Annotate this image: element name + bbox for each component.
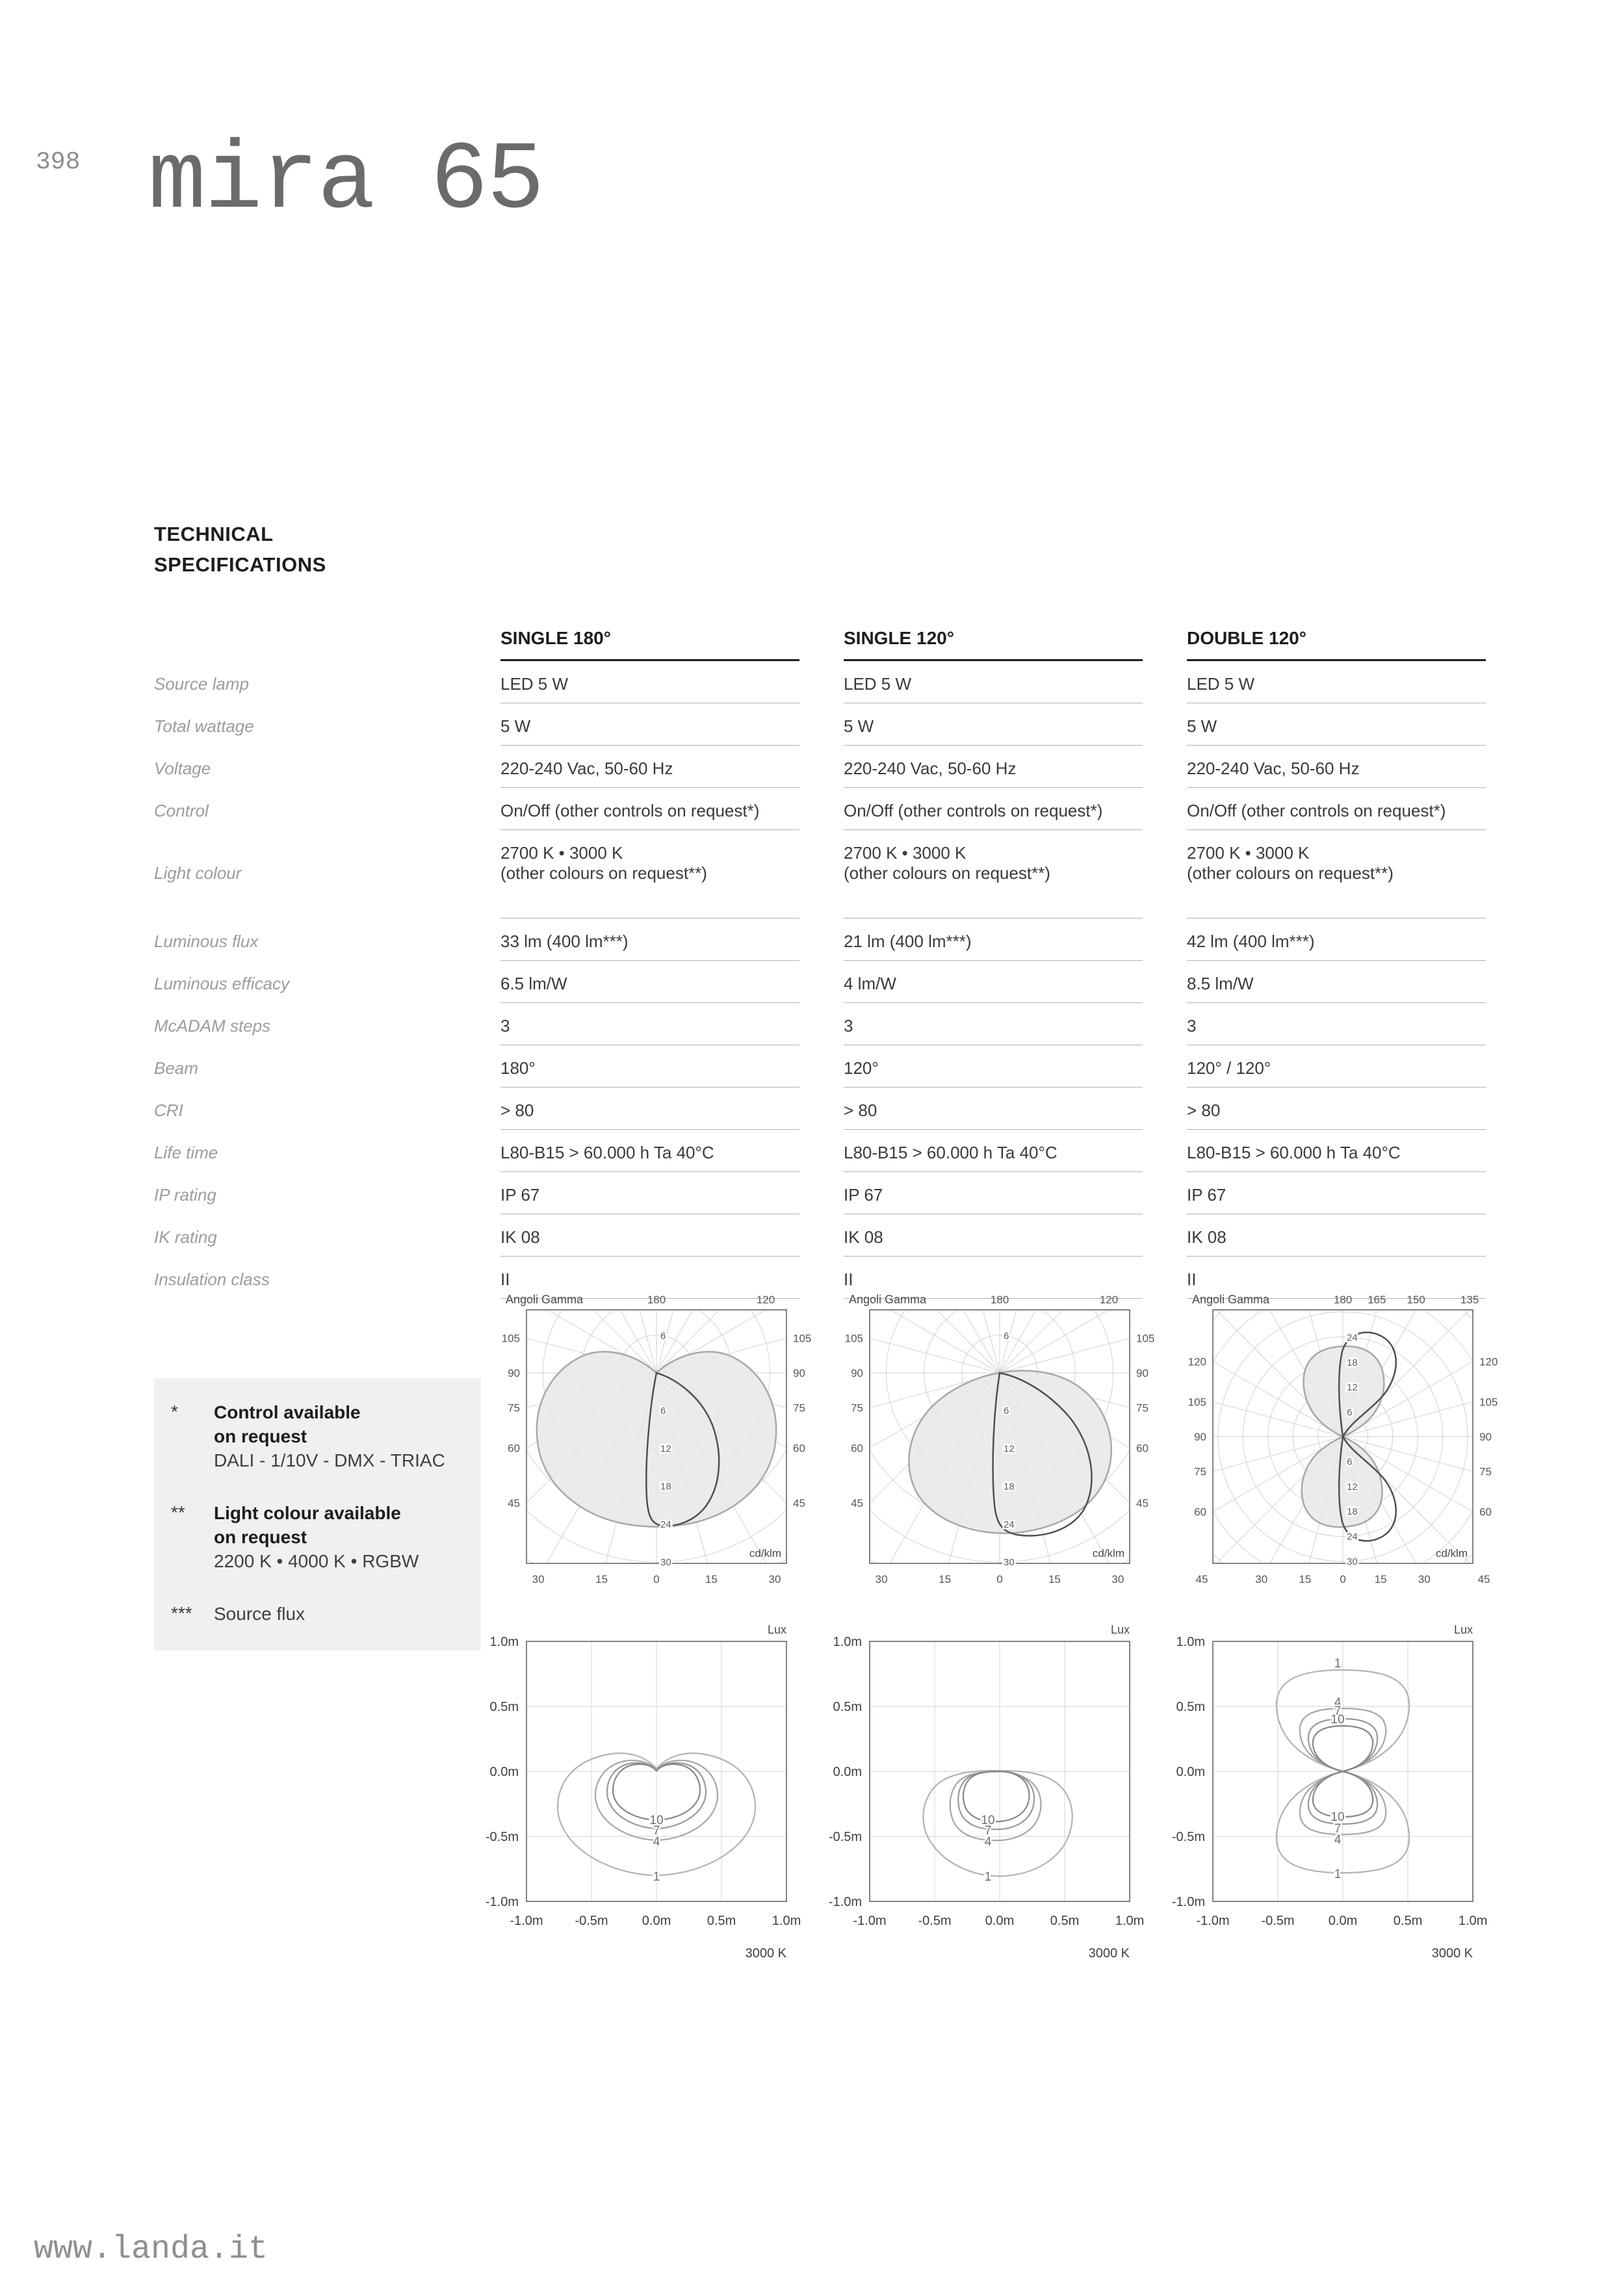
table-cell: 42 lm (400 lm***): [1187, 919, 1486, 961]
polar-diagram-double-120: Angoli Gamma1801651501351201201051059090…: [1187, 1290, 1486, 1609]
footer-url: www.landa.it: [34, 2231, 268, 2268]
row-label: Total wattage: [154, 703, 500, 746]
svg-text:0.0m: 0.0m: [833, 1765, 862, 1779]
table-cell: 8.5 lm/W: [1187, 961, 1486, 1003]
polar-diagram-container-single-120: Angoli Gamma1801201051059090757560604545…: [844, 1290, 1143, 1609]
table-cell: 5 W: [844, 703, 1143, 746]
lux-diagram-container-single-120: 10741Lux1.0m0.5m0.0m-0.5m-1.0m-1.0m-0.5m…: [844, 1623, 1143, 1961]
svg-text:90: 90: [1194, 1431, 1206, 1443]
svg-text:15: 15: [1299, 1573, 1311, 1585]
svg-text:Angoli Gamma: Angoli Gamma: [849, 1293, 927, 1306]
svg-text:15: 15: [1048, 1573, 1061, 1585]
svg-text:180: 180: [991, 1294, 1009, 1306]
svg-text:30: 30: [1111, 1573, 1124, 1585]
column-header: SINGLE 180°: [500, 619, 799, 661]
table-cell: 3: [1187, 1003, 1486, 1045]
svg-text:-1.0m: -1.0m: [853, 1914, 886, 1928]
footnote-item: *Control available on requestDALI - 1/10…: [171, 1400, 461, 1472]
row-label: Life time: [154, 1130, 500, 1172]
svg-text:cd/klm: cd/klm: [1436, 1547, 1468, 1559]
lux-diagram-single-180: 10741Lux1.0m0.5m0.0m-0.5m-1.0m-1.0m-0.5m…: [500, 1623, 799, 1961]
table-cell: > 80: [844, 1088, 1143, 1130]
svg-text:4: 4: [985, 1835, 992, 1849]
table-cell: IK 08: [1187, 1214, 1486, 1257]
table-cell: 3: [500, 1003, 799, 1045]
svg-text:45: 45: [851, 1497, 863, 1509]
svg-text:60: 60: [1136, 1442, 1149, 1454]
svg-text:6: 6: [1347, 1456, 1352, 1467]
svg-text:30: 30: [1004, 1557, 1015, 1568]
footnote-text: Source flux: [214, 1602, 305, 1626]
row-label: McADAM steps: [154, 1003, 500, 1045]
svg-text:-0.5m: -0.5m: [918, 1914, 951, 1928]
row-label: Insulation class: [154, 1257, 500, 1299]
svg-text:12: 12: [660, 1443, 671, 1454]
svg-text:18: 18: [660, 1481, 671, 1493]
footnote-marker: ***: [171, 1602, 214, 1626]
polar-diagram-single-180: Angoli Gamma1801201051059090757560604545…: [500, 1290, 799, 1609]
svg-text:Angoli Gamma: Angoli Gamma: [506, 1293, 584, 1306]
svg-text:12: 12: [1347, 1481, 1358, 1493]
svg-text:1.0m: 1.0m: [772, 1914, 801, 1928]
column-header: DOUBLE 120°: [1187, 619, 1486, 661]
svg-text:6: 6: [1004, 1331, 1009, 1342]
table-cell: On/Off (other controls on request*): [844, 788, 1143, 830]
svg-text:180: 180: [1334, 1294, 1352, 1306]
svg-text:105: 105: [1188, 1396, 1206, 1408]
svg-text:15: 15: [1375, 1573, 1387, 1585]
table-cell: 2700 K • 3000 K (other colours on reques…: [500, 830, 799, 919]
table-cell: 220-240 Vac, 50-60 Hz: [1187, 746, 1486, 788]
svg-text:18: 18: [1347, 1506, 1358, 1517]
svg-text:120: 120: [1100, 1294, 1118, 1306]
table-cell: 120° / 120°: [1187, 1045, 1486, 1088]
table-cell: 33 lm (400 lm***): [500, 919, 799, 961]
svg-text:1: 1: [1334, 1657, 1342, 1671]
svg-text:Lux: Lux: [1454, 1623, 1473, 1636]
table-cell: On/Off (other controls on request*): [500, 788, 799, 830]
svg-text:-1.0m: -1.0m: [510, 1914, 543, 1928]
svg-text:60: 60: [851, 1442, 863, 1454]
svg-text:60: 60: [508, 1442, 520, 1454]
svg-text:30: 30: [1255, 1573, 1267, 1585]
table-cell: L80-B15 > 60.000 h Ta 40°C: [500, 1130, 799, 1172]
svg-text:30: 30: [1418, 1573, 1431, 1585]
table-cell: IP 67: [500, 1172, 799, 1214]
svg-text:6: 6: [1004, 1405, 1009, 1416]
svg-text:24: 24: [1004, 1519, 1015, 1530]
svg-text:30: 30: [876, 1573, 888, 1585]
svg-text:30: 30: [532, 1573, 545, 1585]
svg-text:24: 24: [660, 1519, 671, 1530]
spec-table: SINGLE 180°SINGLE 120°DOUBLE 120°Source …: [154, 619, 1486, 1299]
svg-text:3000 K: 3000 K: [1432, 1946, 1474, 1961]
svg-text:105: 105: [1479, 1396, 1498, 1408]
svg-text:0.5m: 0.5m: [1050, 1914, 1079, 1928]
svg-text:Angoli Gamma: Angoli Gamma: [1192, 1293, 1270, 1306]
svg-text:0.0m: 0.0m: [985, 1914, 1014, 1928]
svg-text:-0.5m: -0.5m: [1172, 1830, 1205, 1844]
table-cell: 2700 K • 3000 K (other colours on reques…: [1187, 830, 1486, 919]
svg-text:30: 30: [1347, 1556, 1358, 1567]
svg-text:0.5m: 0.5m: [833, 1700, 862, 1714]
svg-text:6: 6: [660, 1405, 666, 1416]
table-cell: 5 W: [500, 703, 799, 746]
svg-text:0.5m: 0.5m: [1394, 1914, 1422, 1928]
table-cell: 220-240 Vac, 50-60 Hz: [500, 746, 799, 788]
svg-text:18: 18: [1347, 1357, 1358, 1368]
svg-text:0: 0: [653, 1573, 659, 1585]
svg-text:45: 45: [1478, 1573, 1490, 1585]
catalog-page: 398 mira 65 TECHNICAL SPECIFICATIONS SIN…: [0, 0, 1623, 2296]
footnote-detail: 2200 K • 4000 K • RGBW: [214, 1549, 419, 1573]
svg-text:0: 0: [996, 1573, 1002, 1585]
svg-text:90: 90: [508, 1367, 520, 1379]
lux-diagram-single-120: 10741Lux1.0m0.5m0.0m-0.5m-1.0m-1.0m-0.5m…: [844, 1623, 1143, 1961]
svg-text:90: 90: [1479, 1431, 1492, 1443]
table-cell: 220-240 Vac, 50-60 Hz: [844, 746, 1143, 788]
svg-text:0.5m: 0.5m: [1176, 1700, 1205, 1714]
svg-text:12: 12: [1004, 1443, 1015, 1454]
table-cell: L80-B15 > 60.000 h Ta 40°C: [1187, 1130, 1486, 1172]
lux-diagram-container-single-180: 10741Lux1.0m0.5m0.0m-0.5m-1.0m-1.0m-0.5m…: [500, 1623, 799, 1961]
row-label: Light colour: [154, 850, 500, 919]
footnote-marker: *: [171, 1400, 214, 1472]
svg-text:135: 135: [1461, 1294, 1479, 1306]
footnote-marker: **: [171, 1501, 214, 1573]
table-cell: LED 5 W: [500, 661, 799, 703]
footnote-item: ***Source flux: [171, 1602, 461, 1626]
svg-text:6: 6: [660, 1331, 666, 1342]
table-cell: L80-B15 > 60.000 h Ta 40°C: [844, 1130, 1143, 1172]
table-cell: > 80: [1187, 1088, 1486, 1130]
svg-text:Lux: Lux: [1111, 1623, 1130, 1636]
table-cell: 5 W: [1187, 703, 1486, 746]
footnotes-box: *Control available on requestDALI - 1/10…: [154, 1378, 481, 1650]
svg-text:75: 75: [1194, 1466, 1206, 1478]
lux-diagram-container-double-120: 1471010741Lux1.0m0.5m0.0m-0.5m-1.0m-1.0m…: [1187, 1623, 1486, 1961]
footnote-detail: DALI - 1/10V - DMX - TRIAC: [214, 1448, 445, 1472]
svg-text:6: 6: [1347, 1407, 1352, 1418]
svg-text:0.5m: 0.5m: [490, 1700, 519, 1714]
svg-text:15: 15: [595, 1573, 608, 1585]
svg-text:15: 15: [939, 1573, 951, 1585]
svg-text:105: 105: [502, 1332, 520, 1344]
svg-text:1.0m: 1.0m: [1459, 1914, 1487, 1928]
svg-text:90: 90: [1136, 1367, 1149, 1379]
svg-text:120: 120: [757, 1294, 775, 1306]
svg-text:12: 12: [1347, 1382, 1358, 1393]
svg-text:0.0m: 0.0m: [1329, 1914, 1357, 1928]
svg-text:90: 90: [851, 1367, 863, 1379]
row-label: Source lamp: [154, 661, 500, 703]
table-cell: 2700 K • 3000 K (other colours on reques…: [844, 830, 1143, 919]
row-label: Luminous flux: [154, 919, 500, 961]
svg-text:90: 90: [793, 1367, 805, 1379]
svg-text:1: 1: [985, 1870, 992, 1884]
footnote-detail: Source flux: [214, 1602, 305, 1626]
svg-text:75: 75: [793, 1402, 805, 1415]
svg-text:180: 180: [647, 1294, 666, 1306]
svg-text:75: 75: [851, 1402, 863, 1415]
table-cell: 3: [844, 1003, 1143, 1045]
svg-text:1.0m: 1.0m: [833, 1635, 862, 1649]
svg-text:10: 10: [1331, 1713, 1344, 1727]
polar-diagram-container-single-180: Angoli Gamma1801201051059090757560604545…: [500, 1290, 799, 1609]
table-cell: > 80: [500, 1088, 799, 1130]
svg-text:105: 105: [845, 1332, 863, 1344]
svg-text:1: 1: [1334, 1868, 1342, 1881]
svg-text:24: 24: [1347, 1532, 1358, 1543]
svg-text:60: 60: [1194, 1506, 1206, 1518]
svg-text:0: 0: [1340, 1573, 1345, 1585]
row-label: Voltage: [154, 746, 500, 788]
footnote-item: **Light colour available on request2200 …: [171, 1501, 461, 1573]
svg-text:Lux: Lux: [768, 1623, 786, 1636]
svg-text:1.0m: 1.0m: [490, 1635, 519, 1649]
table-cell: On/Off (other controls on request*): [1187, 788, 1486, 830]
svg-text:45: 45: [793, 1497, 805, 1509]
svg-text:30: 30: [768, 1573, 781, 1585]
svg-text:120: 120: [1188, 1356, 1206, 1368]
row-label: Beam: [154, 1045, 500, 1088]
svg-text:-1.0m: -1.0m: [1196, 1914, 1229, 1928]
row-label: CRI: [154, 1088, 500, 1130]
svg-text:-0.5m: -0.5m: [575, 1914, 608, 1928]
svg-text:60: 60: [793, 1442, 805, 1454]
table-cell: 180°: [500, 1045, 799, 1088]
svg-text:-0.5m: -0.5m: [486, 1830, 519, 1844]
polar-diagram-container-double-120: Angoli Gamma1801651501351201201051059090…: [1187, 1290, 1486, 1609]
table-cell: IP 67: [1187, 1172, 1486, 1214]
svg-text:4: 4: [653, 1835, 660, 1849]
svg-text:cd/klm: cd/klm: [749, 1547, 781, 1559]
svg-text:165: 165: [1368, 1294, 1386, 1306]
svg-text:0.0m: 0.0m: [642, 1914, 671, 1928]
svg-text:150: 150: [1407, 1294, 1425, 1306]
lux-diagram-double-120: 1471010741Lux1.0m0.5m0.0m-0.5m-1.0m-1.0m…: [1187, 1623, 1486, 1961]
svg-text:-1.0m: -1.0m: [486, 1895, 519, 1909]
svg-text:30: 30: [660, 1557, 671, 1568]
svg-text:-0.5m: -0.5m: [1261, 1914, 1294, 1928]
svg-text:24: 24: [1347, 1332, 1358, 1343]
table-cell: 4 lm/W: [844, 961, 1143, 1003]
svg-text:15: 15: [705, 1573, 718, 1585]
table-cell: 120°: [844, 1045, 1143, 1088]
footnote-text: Control available on requestDALI - 1/10V…: [214, 1400, 445, 1472]
svg-text:75: 75: [508, 1402, 520, 1415]
table-corner: [154, 619, 500, 661]
table-cell: LED 5 W: [1187, 661, 1486, 703]
svg-text:105: 105: [1136, 1332, 1154, 1344]
svg-text:3000 K: 3000 K: [1089, 1946, 1130, 1961]
column-header: SINGLE 120°: [844, 619, 1143, 661]
svg-text:-0.5m: -0.5m: [829, 1830, 862, 1844]
table-cell: 6.5 lm/W: [500, 961, 799, 1003]
footnote-text: Light colour available on request2200 K …: [214, 1501, 419, 1573]
table-cell: IP 67: [844, 1172, 1143, 1214]
table-cell: IK 08: [500, 1214, 799, 1257]
svg-text:0.5m: 0.5m: [707, 1914, 736, 1928]
svg-text:3000 K: 3000 K: [746, 1946, 787, 1961]
svg-text:45: 45: [508, 1497, 520, 1509]
table-cell: IK 08: [844, 1214, 1143, 1257]
row-label: Control: [154, 788, 500, 830]
svg-text:45: 45: [1136, 1497, 1149, 1509]
footnote-title: Control available on request: [214, 1400, 445, 1448]
svg-text:75: 75: [1479, 1466, 1492, 1478]
svg-text:-1.0m: -1.0m: [829, 1895, 862, 1909]
svg-text:1.0m: 1.0m: [1176, 1635, 1205, 1649]
svg-text:1: 1: [653, 1870, 660, 1884]
svg-text:0.0m: 0.0m: [490, 1765, 519, 1779]
svg-text:60: 60: [1479, 1506, 1492, 1518]
row-label: Luminous efficacy: [154, 961, 500, 1003]
polar-diagram-single-120: Angoli Gamma1801201051059090757560604545…: [844, 1290, 1143, 1609]
svg-text:18: 18: [1004, 1481, 1015, 1493]
section-title: TECHNICAL SPECIFICATIONS: [154, 519, 326, 580]
svg-text:4: 4: [1334, 1833, 1342, 1847]
svg-text:75: 75: [1136, 1402, 1149, 1415]
svg-text:cd/klm: cd/klm: [1093, 1547, 1124, 1559]
svg-text:-1.0m: -1.0m: [1172, 1895, 1205, 1909]
product-title: mira 65: [148, 130, 543, 234]
svg-text:45: 45: [1196, 1573, 1208, 1585]
svg-text:1.0m: 1.0m: [1115, 1914, 1144, 1928]
footnote-title: Light colour available on request: [214, 1501, 419, 1549]
table-cell: 21 lm (400 lm***): [844, 919, 1143, 961]
row-label: IP rating: [154, 1172, 500, 1214]
table-cell: LED 5 W: [844, 661, 1143, 703]
page-number: 398: [36, 148, 80, 176]
svg-text:0.0m: 0.0m: [1176, 1765, 1205, 1779]
row-label: IK rating: [154, 1214, 500, 1257]
svg-text:120: 120: [1479, 1356, 1498, 1368]
svg-text:105: 105: [793, 1332, 811, 1344]
